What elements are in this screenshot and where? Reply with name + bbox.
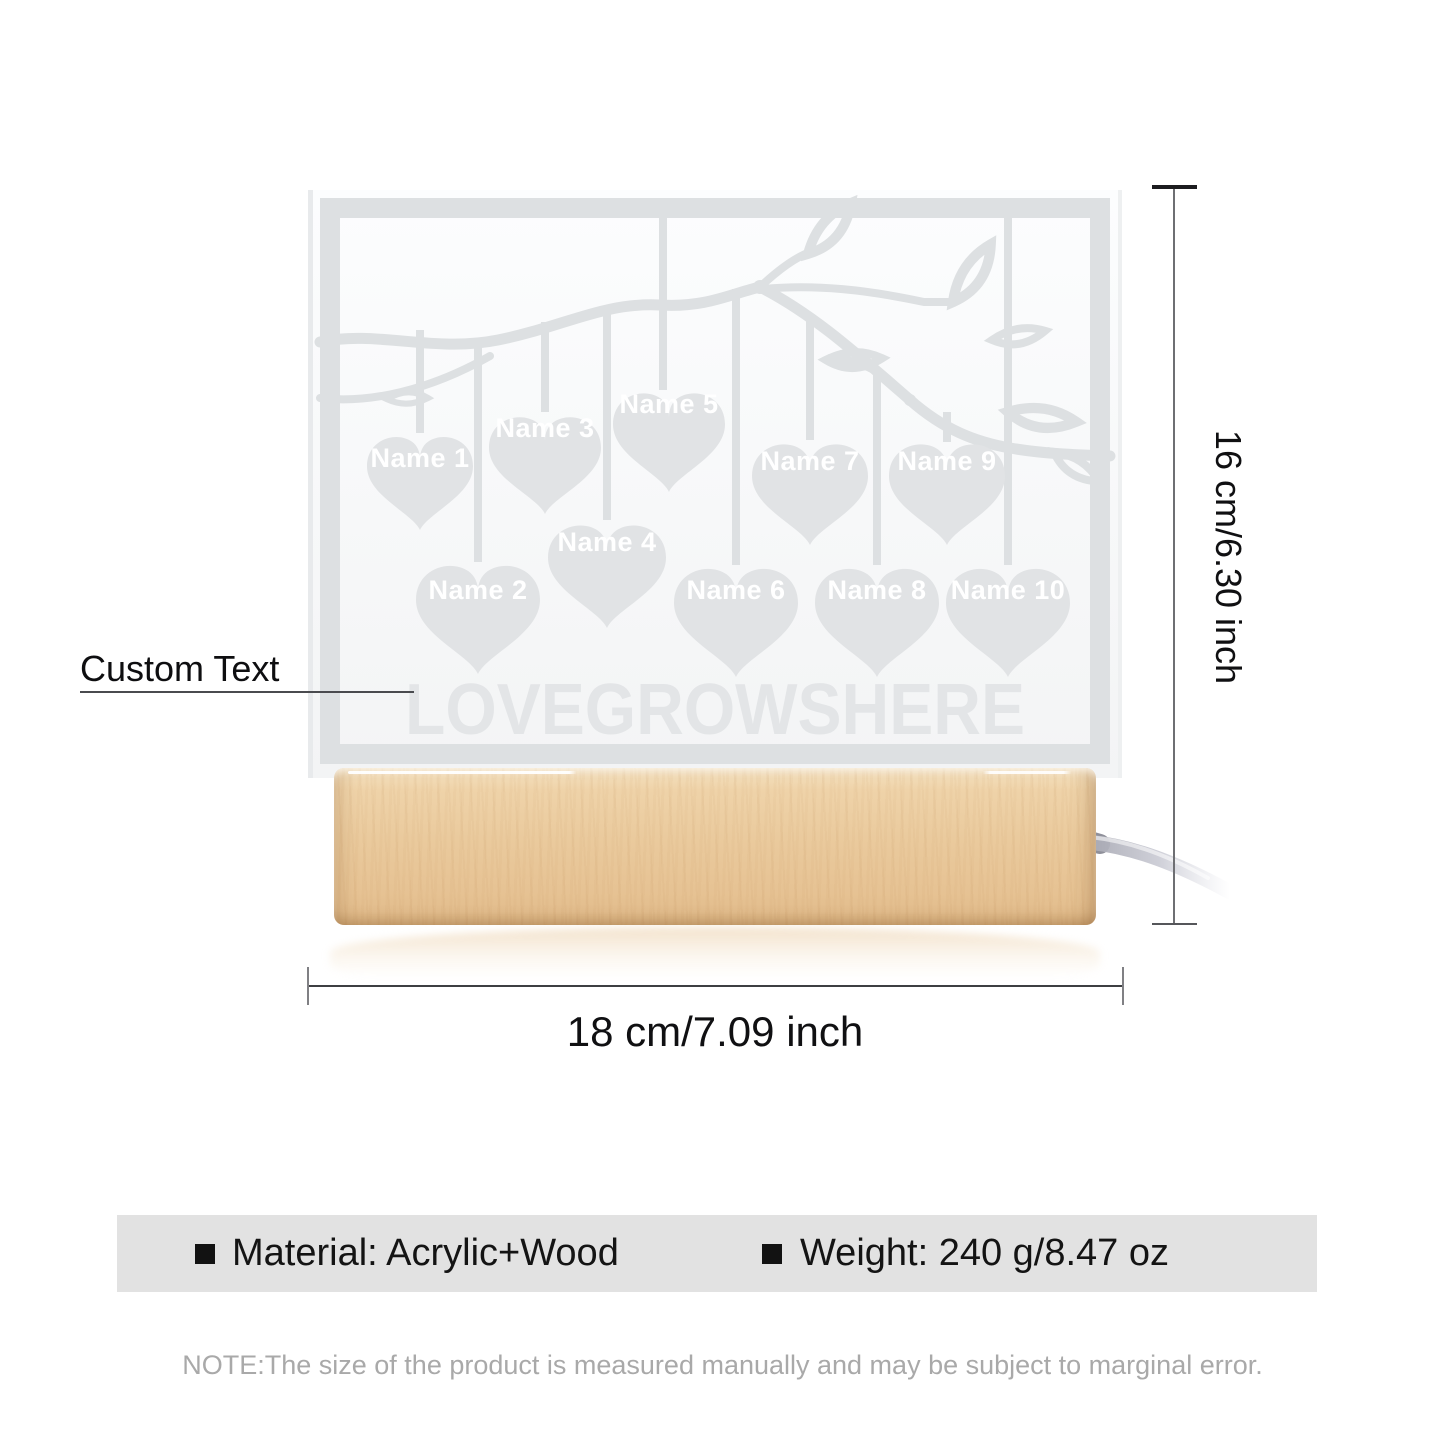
square-bullet-icon [195,1244,215,1264]
engraved-title: LOVEGROWSHERE [405,670,1025,750]
base-reflection [330,927,1100,991]
height-dimension-cap-bottom [1152,923,1197,925]
note-text: NOTE:The size of the product is measured… [0,1350,1445,1381]
heart-label: Name 9 [897,446,996,476]
weight-spec: Weight: 240 g/8.47 oz [800,1215,1169,1292]
heart-label: Name 1 [370,443,469,473]
acrylic-panel: Name 1 Name 3 Name 5 Name 7 Name 9 Name … [308,190,1122,778]
height-dimension-label: 16 cm/6.30 inch [1207,407,1249,707]
heart-label: Name 2 [428,575,527,605]
panel-left-edge [308,190,313,778]
heart-label: Name 5 [619,389,718,419]
heart-label: Name 4 [557,527,656,557]
width-dimension-tick-right [1122,967,1124,1005]
heart-label: Name 6 [686,575,785,605]
heart-label: Name 3 [495,413,594,443]
power-cable [1082,800,1242,910]
width-dimension-tick-left [307,967,309,1005]
base-slot [348,771,1086,774]
product-spec-image: Name 1 Name 3 Name 5 Name 7 Name 9 Name … [0,0,1445,1445]
heart-label: Name 8 [827,575,926,605]
square-bullet-icon [762,1244,782,1264]
spec-bar: Material: Acrylic+Wood Weight: 240 g/8.4… [117,1215,1317,1292]
panel-right-edge [1118,190,1122,778]
heart-label: Name 7 [760,446,859,476]
height-dimension-cap-top [1152,185,1197,189]
wooden-base [334,768,1096,925]
heart-label: Name 10 [951,575,1066,605]
cable-wire [1088,842,1230,892]
custom-text-leader-line [80,691,414,693]
width-dimension-line [308,985,1124,987]
height-dimension-line [1173,187,1175,925]
custom-text-callout: Custom Text [80,648,279,690]
material-spec: Material: Acrylic+Wood [232,1215,619,1292]
width-dimension-label: 18 cm/7.09 inch [465,1008,965,1056]
